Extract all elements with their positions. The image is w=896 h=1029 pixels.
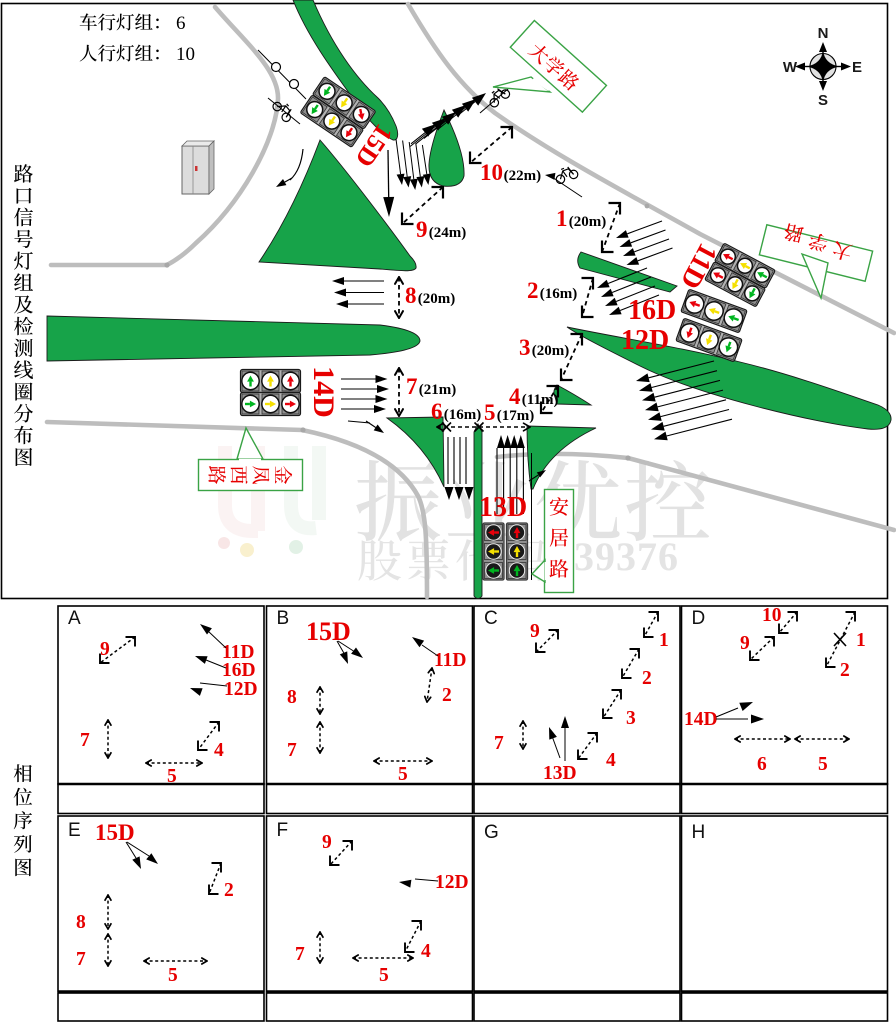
svg-text:5: 5 [484, 400, 496, 425]
svg-text:C: C [484, 608, 498, 629]
svg-text:9: 9 [322, 832, 332, 853]
svg-text:14D: 14D [307, 366, 340, 418]
svg-text:6: 6 [431, 399, 443, 424]
svg-text:E: E [852, 59, 862, 76]
svg-text:S: S [818, 92, 828, 109]
svg-text:3: 3 [519, 335, 531, 360]
svg-text:10: 10 [480, 160, 503, 185]
svg-text:5: 5 [168, 965, 178, 986]
svg-text:1: 1 [556, 206, 568, 231]
svg-text:(16m): (16m) [444, 407, 482, 423]
svg-text:2: 2 [642, 668, 652, 689]
svg-text:1: 1 [659, 630, 669, 651]
svg-text:2: 2 [224, 880, 234, 901]
svg-text:9: 9 [416, 217, 428, 242]
svg-text:A: A [68, 608, 81, 629]
svg-text:9: 9 [100, 639, 110, 660]
svg-text:D: D [692, 608, 706, 629]
svg-text:11D: 11D [434, 650, 467, 671]
svg-text:7: 7 [406, 374, 418, 399]
svg-text:W: W [783, 59, 798, 76]
svg-text:3: 3 [626, 708, 636, 729]
svg-text:(16m): (16m) [540, 286, 578, 302]
svg-text:7: 7 [494, 733, 504, 754]
svg-text:6: 6 [176, 13, 186, 34]
svg-text:15D: 15D [95, 820, 135, 845]
svg-text:2: 2 [527, 278, 539, 303]
svg-text:10: 10 [762, 605, 782, 626]
svg-text:(20m): (20m) [569, 214, 607, 230]
svg-text:N: N [818, 25, 829, 42]
svg-text:B: B [277, 608, 290, 629]
svg-text:9: 9 [740, 633, 750, 654]
svg-text:5: 5 [818, 754, 828, 775]
svg-text:8: 8 [405, 283, 417, 308]
svg-text:16D: 16D [222, 660, 256, 681]
svg-text:2: 2 [442, 685, 452, 706]
svg-text:4: 4 [421, 941, 431, 962]
svg-text:12D: 12D [621, 325, 669, 356]
svg-text:F: F [277, 820, 289, 841]
svg-text:7: 7 [295, 944, 305, 965]
svg-text:(24m): (24m) [429, 225, 467, 241]
svg-text:6: 6 [757, 754, 767, 775]
svg-text:4: 4 [509, 384, 521, 409]
svg-text:7: 7 [287, 740, 297, 761]
svg-text:9: 9 [530, 621, 540, 642]
svg-text:5: 5 [398, 764, 408, 785]
svg-text:7: 7 [80, 730, 90, 751]
svg-text:(20m): (20m) [532, 343, 570, 359]
svg-text:14D: 14D [684, 709, 718, 730]
svg-text:8: 8 [76, 912, 86, 933]
svg-text:10: 10 [176, 44, 195, 65]
svg-text:4: 4 [606, 750, 616, 771]
svg-text:E: E [68, 820, 81, 841]
svg-text:(21m): (21m) [419, 382, 457, 398]
svg-text:2: 2 [840, 660, 850, 681]
svg-text:(22m): (22m) [504, 168, 542, 184]
svg-text:H: H [692, 822, 706, 843]
svg-text:(17m): (17m) [497, 408, 535, 424]
svg-text:12D: 12D [224, 679, 258, 700]
svg-text:13D: 13D [479, 492, 527, 523]
svg-text:12D: 12D [435, 872, 469, 893]
svg-text:(11m): (11m) [522, 392, 559, 408]
svg-text:4: 4 [214, 740, 224, 761]
svg-text:5: 5 [167, 766, 177, 787]
svg-text:15D: 15D [306, 617, 351, 646]
svg-text:G: G [484, 822, 499, 843]
svg-text:16D: 16D [628, 295, 676, 326]
svg-text:(20m): (20m) [418, 291, 456, 307]
svg-text:13D: 13D [543, 763, 577, 784]
svg-text:1: 1 [856, 630, 866, 651]
svg-text:7: 7 [76, 949, 86, 970]
svg-text:8: 8 [287, 687, 297, 708]
svg-text:5: 5 [379, 965, 389, 986]
